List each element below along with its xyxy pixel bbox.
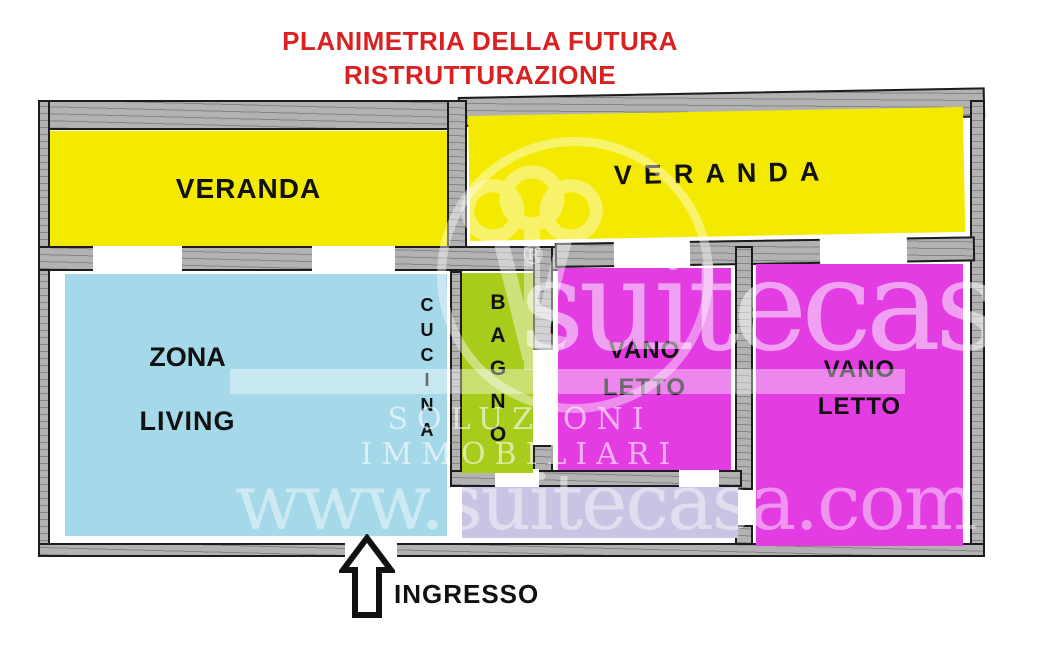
- room-living: ZONA LIVING: [65, 274, 447, 536]
- window-opening: [93, 245, 182, 272]
- wall-kitchen-bathroom: [450, 271, 462, 480]
- wall-left: [38, 100, 50, 557]
- room-label-line-2: LETTO: [818, 393, 901, 421]
- room-label: VERANDA: [614, 156, 832, 191]
- room-veranda-left: VERANDA: [50, 131, 447, 246]
- room-bedroom-1: VANO LETTO: [558, 268, 731, 470]
- wall-veranda-living: [38, 246, 560, 271]
- room-label-line-1: ZONA: [90, 342, 285, 373]
- room-label: ZONA LIVING: [90, 342, 285, 437]
- floor-plan: PLANIMETRIA DELLA FUTURA RISTRUTTURAZION…: [0, 0, 1051, 667]
- title-line-2: RISTRUTTURAZIONE: [205, 58, 755, 92]
- room-label: BAGNO: [486, 291, 510, 456]
- wall-right: [970, 100, 985, 550]
- room-label: VANO LETTO: [603, 337, 686, 402]
- door-opening: [679, 469, 719, 488]
- room-label-line-1: VANO: [824, 356, 896, 384]
- window-opening: [312, 245, 395, 272]
- page-title: PLANIMETRIA DELLA FUTURA RISTRUTTURAZION…: [205, 24, 755, 92]
- room-label-kitchen: CUCINA: [416, 295, 437, 445]
- room-bathroom: BAGNO: [462, 273, 533, 473]
- wall-between-bedrooms-upper: [735, 246, 753, 490]
- entrance-arrow-icon: [339, 534, 395, 619]
- wall-top-left: [38, 100, 465, 130]
- room-bedroom-2: VANO LETTO: [756, 264, 963, 546]
- room-corridor: [462, 487, 738, 538]
- window-opening: [614, 240, 690, 268]
- room-veranda-right: VERANDA: [468, 107, 965, 241]
- room-label-line-2: LETTO: [603, 374, 686, 402]
- room-label-line-2: LIVING: [90, 406, 285, 437]
- entrance-label: INGRESSO: [394, 579, 539, 610]
- room-label: VERANDA: [176, 173, 321, 205]
- room-label: VANO LETTO: [818, 356, 901, 421]
- window-opening: [820, 236, 907, 264]
- wall-bathroom-bedroom-upper: [533, 246, 553, 350]
- title-line-1: PLANIMETRIA DELLA FUTURA: [205, 24, 755, 58]
- room-label-line-1: VANO: [609, 337, 681, 365]
